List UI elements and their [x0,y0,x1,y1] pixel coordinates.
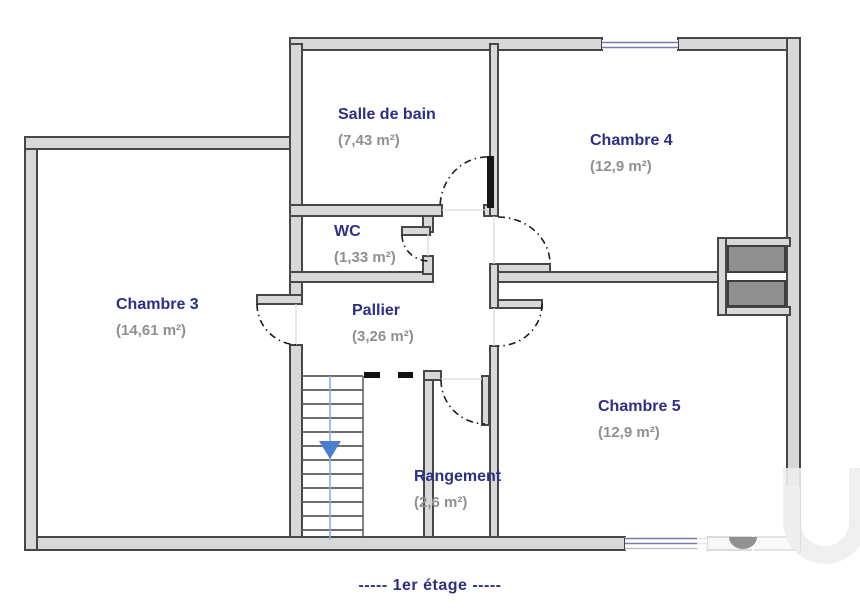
door-leaf-chambre-4 [498,264,550,272]
door-leaf-chambre-5 [498,300,542,308]
room-label-pallier: Pallier (3,26 m²) [352,300,414,347]
room-label-chambre-4: Chambre 4 (12,9 m²) [590,130,673,177]
window-top-chambre-4 [602,40,678,49]
room-name: WC [334,221,396,242]
staircase [302,376,363,540]
wall-bottom-left-segment [25,537,625,550]
floor-title: ----- 1er étage ----- [0,577,860,595]
room-name: Pallier [352,300,414,321]
wall-wc-right-lower [423,256,433,274]
open-passage-markers [364,372,413,378]
room-name: Chambre 5 [598,396,681,417]
door-arc-salle-de-bain [440,157,487,208]
door-arc-chambre-4 [498,217,550,264]
room-label-chambre-5: Chambre 5 (12,9 m²) [598,396,681,443]
room-label-rangement: Rangement (2,6 m²) [414,466,501,513]
room-label-salle-de-bain: Salle de bain (7,43 m²) [338,104,436,151]
room-area: (2,6 m²) [414,492,501,513]
room-name: Salle de bain [338,104,436,125]
room-label-chambre-3: Chambre 3 (14,61 m²) [116,294,199,341]
wall-wc-bottom [290,272,433,282]
wall-bathroom-bottom [290,205,442,216]
wall-corridor-left-upper [290,44,302,303]
stairs-down-arrow-icon [319,441,341,459]
wall-corridor-left-lower [290,345,302,537]
wall-top-right-segment [678,38,800,50]
wall-hall-right-middle [490,264,498,308]
room-name: Chambre 4 [590,130,673,151]
window-bottom-chambre-5 [625,537,707,550]
room-area: (1,33 m²) [334,247,396,268]
wall-left [25,137,37,550]
watermark [697,468,858,555]
closet-wall-bottom [718,307,790,315]
closet-wall-top [718,238,790,246]
door-arc-rangement [441,380,485,424]
passage-dash-left [364,372,380,378]
wall-notch-top [25,137,302,149]
closet-wall-left [718,238,726,315]
windows [602,40,707,550]
room-area: (7,43 m²) [338,130,436,151]
closet-shelf-bottom [728,281,785,306]
room-name: Rangement [414,466,501,487]
room-area: (14,61 m²) [116,320,199,341]
floor-plan-canvas: Salle de bain (7,43 m²) Chambre 4 (12,9 … [0,0,860,616]
door-leaf-salle-de-bain [487,156,494,208]
door-arc-chambre-5 [498,304,542,346]
door-leaf-chambre-3 [257,295,302,304]
door-arc-chambre-3 [257,304,299,345]
built-in-closet [718,238,790,315]
passage-dash-right [398,372,413,378]
room-area: (12,9 m²) [598,422,681,443]
wall-rangement-left-cap [424,371,441,380]
watermark-u-shape [792,468,858,555]
room-area: (3,26 m²) [352,326,414,347]
wall-chambre4-chambre5-divider [498,272,720,282]
door-leaf-wc [402,227,430,235]
room-label-wc: WC (1,33 m²) [334,221,396,268]
closet-shelf-top [728,246,785,272]
door-leaf-rangement [482,376,489,425]
room-name: Chambre 3 [116,294,199,315]
room-area: (12,9 m²) [590,156,673,177]
wall-top-left-segment [290,38,602,50]
